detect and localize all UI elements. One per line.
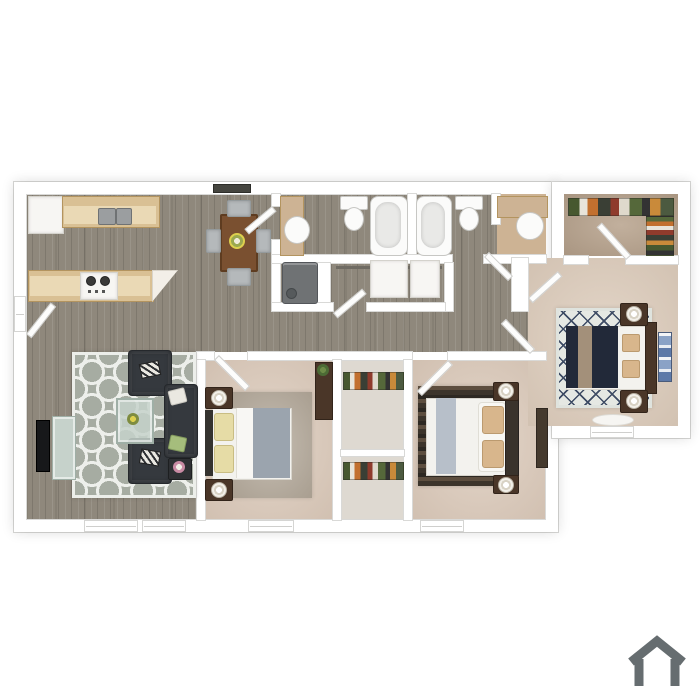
master-bed-runner	[578, 326, 592, 388]
wall-walkin-south-b	[626, 256, 678, 264]
bedroom-2-window	[248, 520, 294, 532]
walkin-clothes-rack-north	[568, 198, 674, 216]
wall-bath-divider	[408, 194, 416, 256]
wall-bedrooms-north-b	[248, 352, 412, 360]
master-pillow-tan-2	[622, 360, 640, 378]
master-bench-rug	[592, 414, 634, 426]
wall-suite-hall	[512, 258, 528, 311]
bed2-headboard	[205, 410, 213, 476]
entry-door-gap	[14, 296, 26, 332]
hvac-vent	[213, 184, 251, 193]
master-lamp-south	[626, 393, 642, 409]
bath1-oval-sink	[284, 216, 310, 244]
bed2-lamp-north	[211, 390, 227, 406]
bath1-toilet-bowl	[344, 207, 364, 231]
wall-bath-west-a	[272, 194, 280, 206]
wall-closet-south-a	[272, 303, 333, 311]
wall-closet-south-b	[367, 303, 445, 311]
bath2-round-sink	[516, 212, 544, 240]
bed3-pillow-tan-1	[482, 406, 504, 434]
master-pillow-tan-1	[622, 334, 640, 352]
wall-bedrooms-north-c	[448, 352, 546, 360]
floor-plan-canvas	[0, 0, 700, 700]
stove-burner-right	[100, 276, 110, 286]
bed2-pillow-1	[214, 413, 234, 441]
kitchen-sink-basin-right	[116, 208, 132, 225]
stove-knobs	[88, 290, 108, 293]
linen-cabinet-1	[370, 260, 408, 298]
dining-chair-north	[227, 200, 251, 217]
wall-bedrooms-north-a	[197, 352, 214, 360]
refrigerator	[28, 196, 64, 234]
bed2-pillow-2	[214, 445, 234, 473]
armchair-south-pillow	[139, 448, 161, 466]
living-window-1	[84, 520, 138, 532]
water-heater-door	[286, 288, 297, 299]
tv-console	[52, 416, 76, 480]
closet-column-clothes-lower	[343, 462, 404, 480]
living-window-2	[142, 520, 186, 532]
bed3-lamp-north	[498, 383, 514, 399]
walkin-clothes-rack-east	[646, 216, 674, 256]
bed3-dresser	[536, 408, 548, 468]
side-table-flowers	[173, 461, 185, 473]
wall-closet-column-west	[333, 360, 341, 520]
dining-chair-east	[256, 229, 271, 253]
bed2-dresser-plant	[317, 364, 329, 376]
bed2-sheet-fold	[236, 408, 253, 478]
kitchen-sink-basin-left	[98, 208, 116, 225]
wall-bath-west-b	[272, 240, 280, 311]
wall-linen-east	[445, 263, 453, 311]
dining-chair-west	[206, 229, 221, 253]
wall-closet-column-east	[404, 360, 412, 520]
bed3-headboard	[505, 398, 519, 476]
coffee-table-flowers	[127, 413, 139, 425]
closet-column-clothes-upper	[343, 372, 404, 390]
dining-centerpiece-flowers	[229, 233, 245, 249]
linen-cabinet-2	[410, 260, 440, 298]
master-bed-blanket	[566, 326, 618, 388]
bed2-lamp-south	[211, 482, 227, 498]
master-lamp-north	[626, 306, 642, 322]
bedroom-3-window	[420, 520, 464, 532]
bed3-pillow-tan-2	[482, 440, 504, 468]
bed2-blanket	[252, 408, 290, 478]
bed3-runner	[436, 398, 456, 474]
tv	[36, 420, 50, 472]
stove-burner-left	[86, 276, 96, 286]
stove-cooktop	[80, 272, 118, 300]
wall-walkin-south-a	[564, 256, 588, 264]
bath2-tub-basin	[421, 202, 445, 248]
house-outline-icon	[628, 634, 686, 688]
sofa-pillow-green	[168, 434, 188, 452]
bath1-tub-basin	[375, 202, 401, 248]
dining-chair-south	[227, 268, 251, 286]
wall-living-bed2	[197, 360, 205, 520]
master-headboard	[645, 322, 657, 394]
master-wall-art	[658, 332, 672, 382]
bath2-toilet-bowl	[459, 207, 479, 231]
bed3-lamp-south	[498, 477, 514, 493]
master-window	[590, 426, 634, 438]
wall-closet-column-shelf	[341, 450, 404, 456]
